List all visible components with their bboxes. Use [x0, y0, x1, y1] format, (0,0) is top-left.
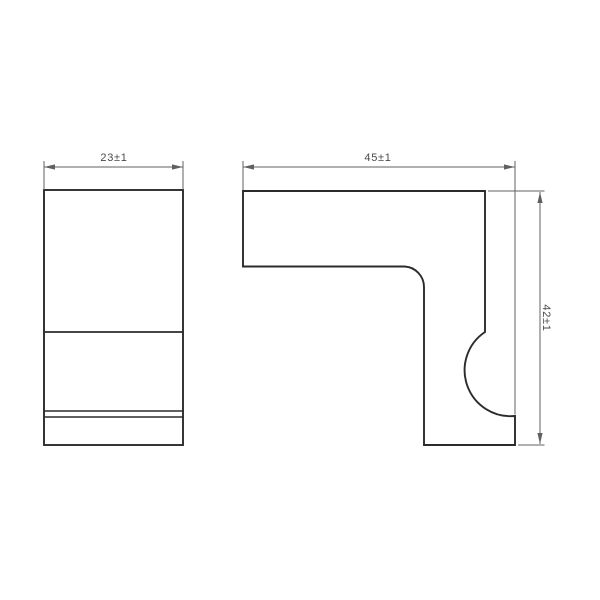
arrowhead-left-icon	[243, 164, 254, 169]
arrowhead-right-icon	[172, 164, 183, 169]
technical-drawing-page: 23±1 45±1	[0, 0, 600, 600]
arrowhead-right-icon	[504, 164, 515, 169]
front-view-outline	[44, 190, 183, 445]
dimension-label-profile-height: 42±1	[540, 304, 552, 331]
profile-view-outline	[243, 191, 515, 445]
dimension-front-width: 23±1	[44, 152, 183, 190]
drawing-canvas: 23±1 45±1	[0, 0, 600, 600]
profile-view	[243, 191, 515, 445]
front-view	[44, 190, 183, 445]
dimension-label-profile-width: 45±1	[364, 152, 391, 164]
arrowhead-down-icon	[537, 433, 542, 444]
dimension-profile-height: 42±1	[488, 191, 552, 445]
arrowhead-up-icon	[537, 192, 542, 203]
arrowhead-left-icon	[44, 164, 55, 169]
dimension-label-front-width: 23±1	[100, 152, 127, 164]
